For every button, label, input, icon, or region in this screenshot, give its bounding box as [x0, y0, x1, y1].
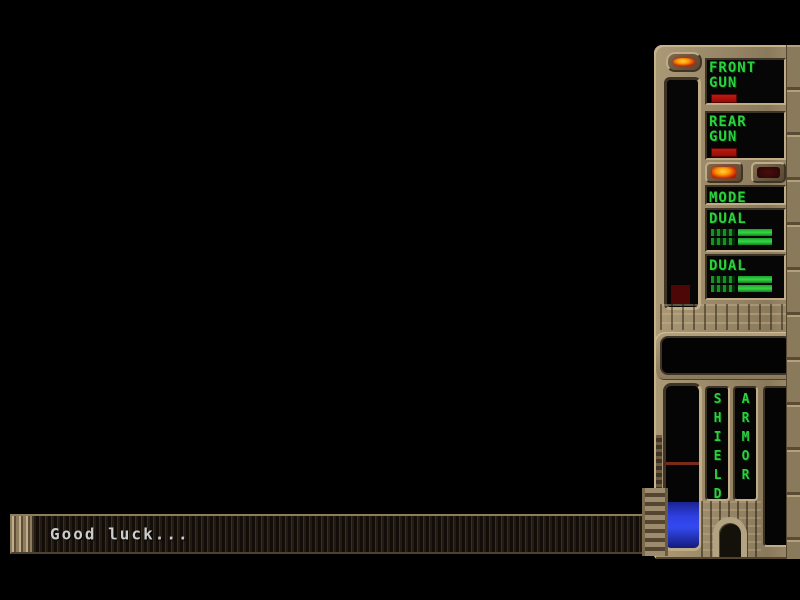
- mode-label: MODE: [709, 190, 747, 206]
- dual-bar-segments: [711, 229, 735, 236]
- shield-gauge: SHIELD: [705, 386, 730, 501]
- mode-display: MODE: [705, 185, 786, 205]
- rear-gun-display: REAR GUN: [705, 111, 786, 160]
- panel-greebles: [660, 304, 788, 330]
- shield-label: SHIELD: [711, 388, 724, 499]
- megabomb-gauge: [664, 77, 701, 310]
- dual-bar-fill: [738, 285, 772, 292]
- dual-bar-fill: [738, 229, 772, 236]
- info-display-screen: [662, 338, 790, 373]
- mode-lamp-right-light: [757, 167, 779, 177]
- front-gun-label-line2: GUN: [709, 76, 784, 91]
- dual-bar-fill: [738, 276, 772, 283]
- dual-bar-segments: [711, 285, 735, 292]
- dual-top-display: DUAL: [705, 208, 786, 252]
- rear-gun-label-line2: GUN: [709, 130, 784, 145]
- dual-bottom-label: DUAL: [709, 259, 784, 274]
- dual-bar-segments: [711, 276, 735, 283]
- dual-bar-segments: [711, 238, 735, 245]
- info-display-frame: [655, 332, 797, 380]
- message-text: Good luck...: [50, 525, 190, 544]
- front-gun-ammo-bar: [711, 94, 737, 103]
- dual-bar-fill: [738, 238, 772, 245]
- power-lamp-light: [673, 58, 695, 67]
- front-gun-display: FRONT GUN: [705, 58, 786, 105]
- game-screen: FRONT GUN REAR GUN MODE DUAL: [0, 0, 800, 600]
- rear-gun-ammo-bar: [711, 148, 737, 157]
- dual-bottom-display: DUAL: [705, 254, 786, 300]
- dual-bottom-bar-1: [711, 276, 784, 283]
- front-gun-label-line1: FRONT: [709, 61, 784, 76]
- dual-bottom-bar-2: [711, 285, 784, 292]
- arch-pipe-icon: [713, 517, 747, 557]
- panel-machinery: [701, 501, 761, 557]
- message-bar-endcap: [12, 516, 34, 552]
- armor-gauge: ARMOR: [733, 386, 758, 501]
- megabomb-fill: [671, 285, 690, 304]
- dual-top-bar-2: [711, 238, 784, 245]
- armor-label: ARMOR: [739, 388, 752, 499]
- panel-right-rail: [786, 45, 800, 559]
- energy-threshold-marker: [666, 462, 699, 465]
- dual-top-bar-1: [711, 229, 784, 236]
- hud-panel: FRONT GUN REAR GUN MODE DUAL: [654, 45, 800, 559]
- energy-gauge: [663, 383, 702, 551]
- mode-lamp-left-light: [712, 167, 736, 177]
- mode-lamp-right-icon: [751, 162, 786, 183]
- mode-lamp-left-icon: [705, 162, 743, 183]
- dual-top-label: DUAL: [709, 212, 784, 227]
- panel-connector: [642, 488, 668, 556]
- message-bar: Good luck...: [10, 514, 660, 554]
- power-lamp-icon: [666, 52, 702, 72]
- rear-gun-label-line1: REAR: [709, 115, 784, 130]
- energy-fill: [666, 502, 699, 548]
